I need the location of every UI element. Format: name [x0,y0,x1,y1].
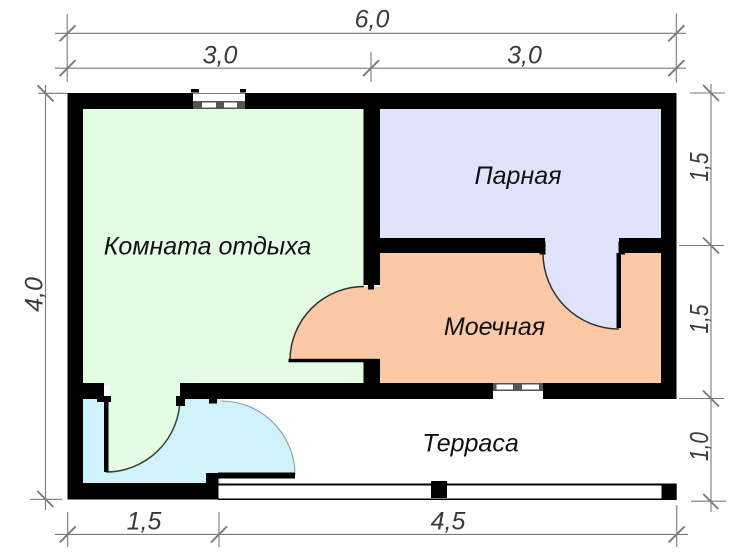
svg-text:4,0: 4,0 [21,277,49,312]
svg-text:6,0: 6,0 [355,6,390,34]
svg-text:1,0: 1,0 [684,432,714,461]
svg-text:3,0: 3,0 [203,42,238,70]
svg-text:1,5: 1,5 [684,304,714,333]
svg-text:4,5: 4,5 [431,508,466,536]
svg-text:1,5: 1,5 [684,152,714,181]
svg-text:Моечная: Моечная [444,313,545,341]
svg-text:Терраса: Терраса [422,430,519,458]
svg-text:Парная: Парная [475,162,562,190]
svg-text:Комната отдыха: Комната отдыха [104,233,312,261]
svg-text:1,5: 1,5 [127,508,162,536]
svg-text:3,0: 3,0 [507,42,542,70]
